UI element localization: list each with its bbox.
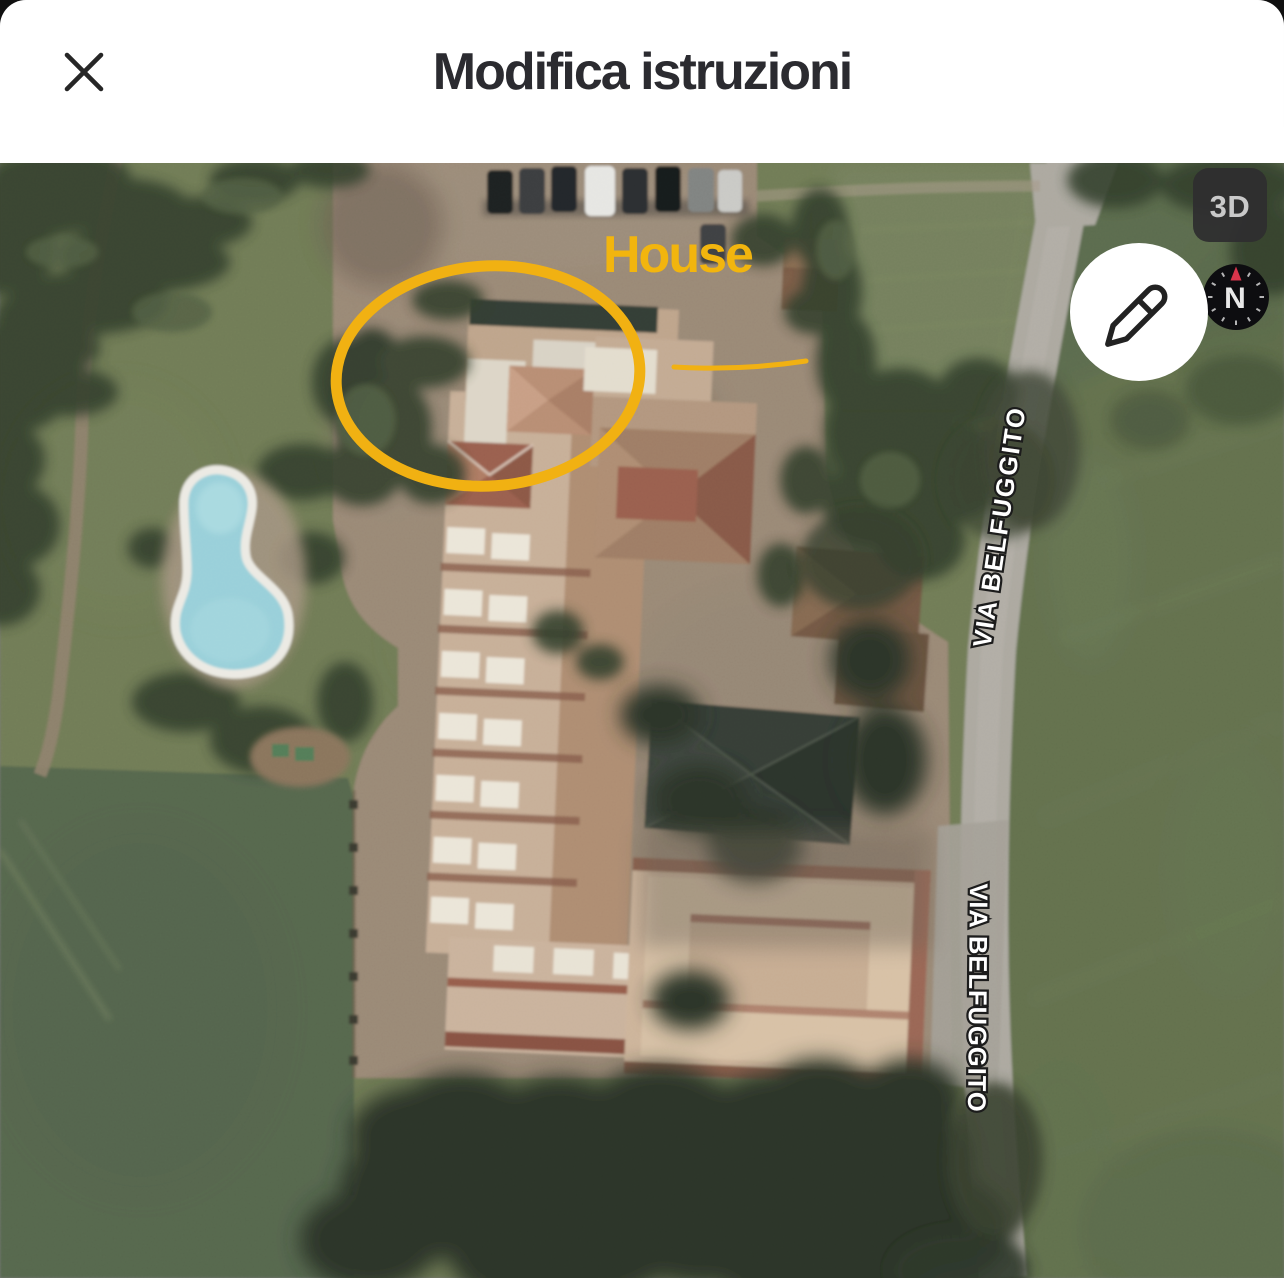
svg-text:3D: 3D bbox=[1210, 189, 1251, 224]
svg-text:VIA BELFUGGITO: VIA BELFUGGITO bbox=[962, 883, 992, 1113]
svg-text:N: N bbox=[1224, 282, 1246, 315]
svg-text:House: House bbox=[603, 226, 753, 284]
